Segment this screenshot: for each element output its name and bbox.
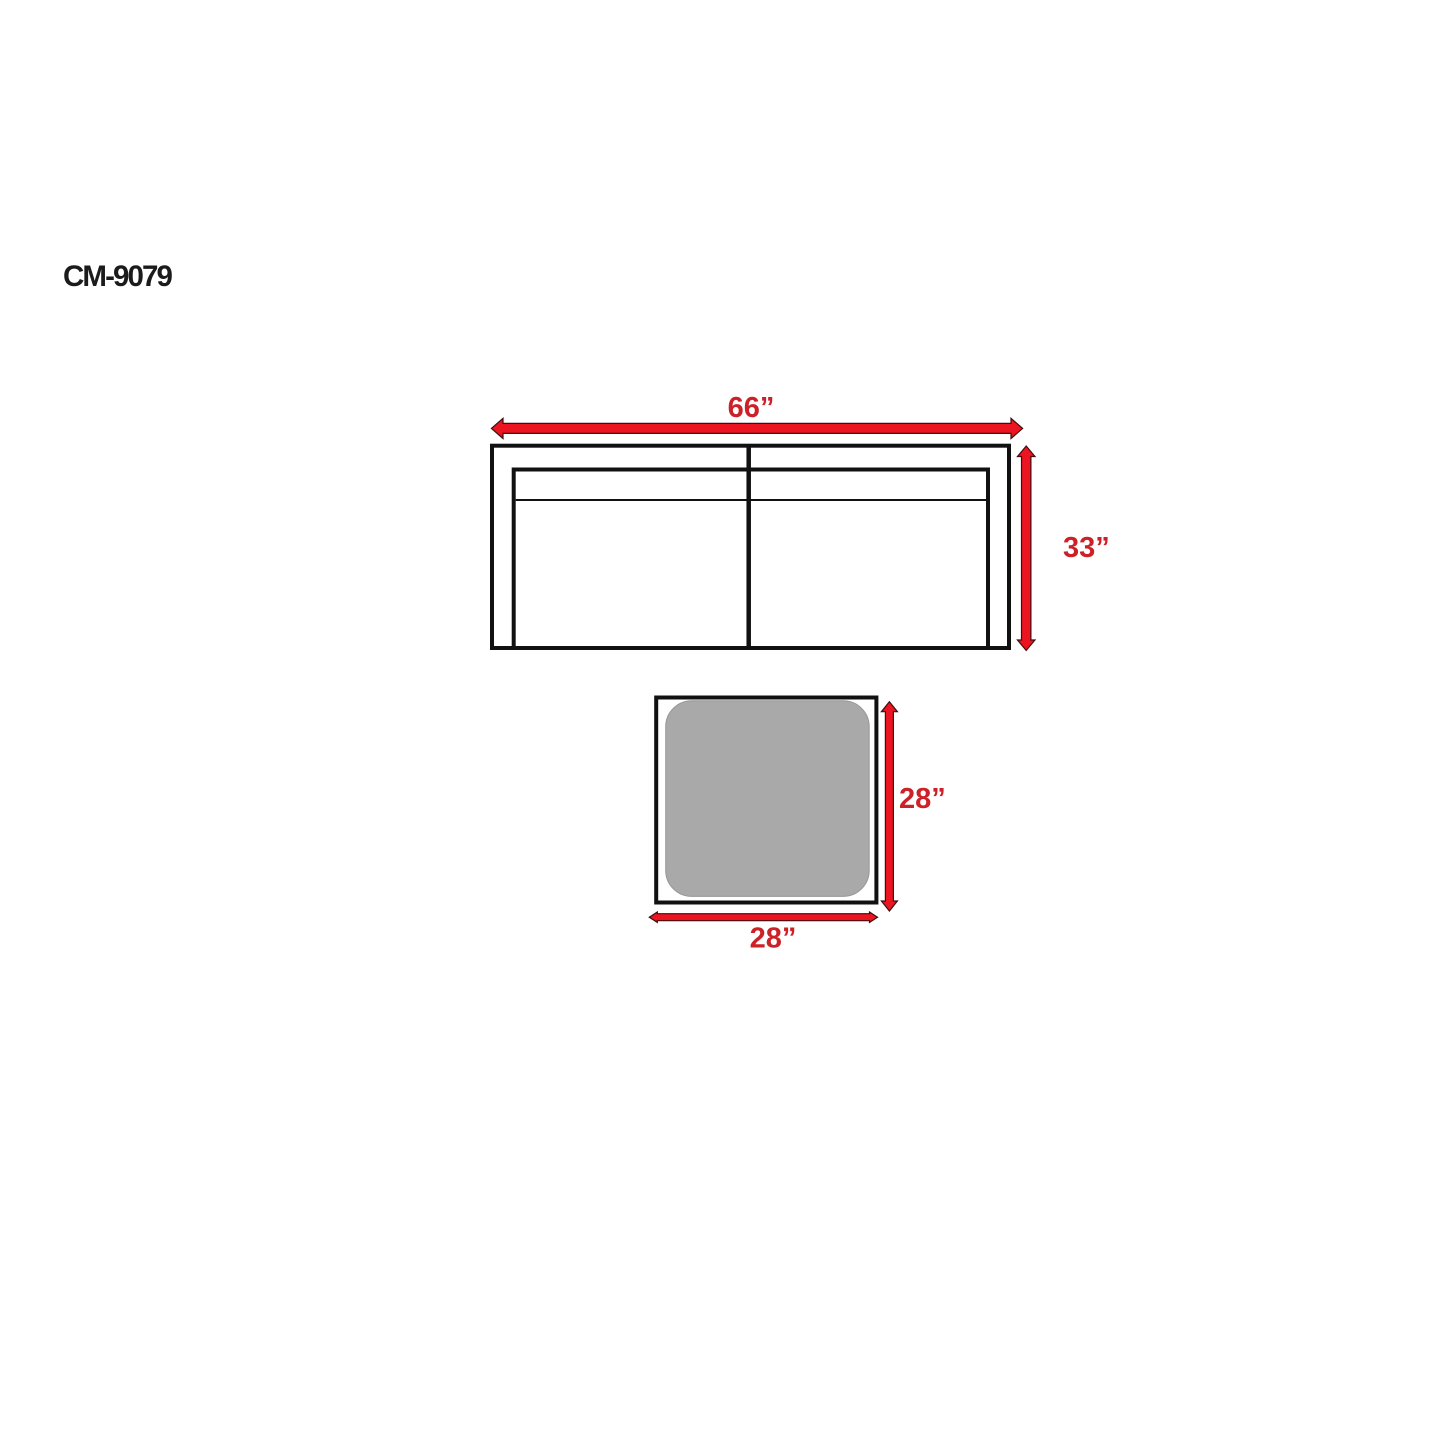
svg-text:66”: 66” [728, 392, 775, 424]
svg-text:28”: 28” [750, 923, 797, 955]
svg-text:33”: 33” [1063, 532, 1110, 564]
svg-text:CM-9079: CM-9079 [63, 260, 173, 293]
svg-text:28”: 28” [899, 783, 946, 815]
